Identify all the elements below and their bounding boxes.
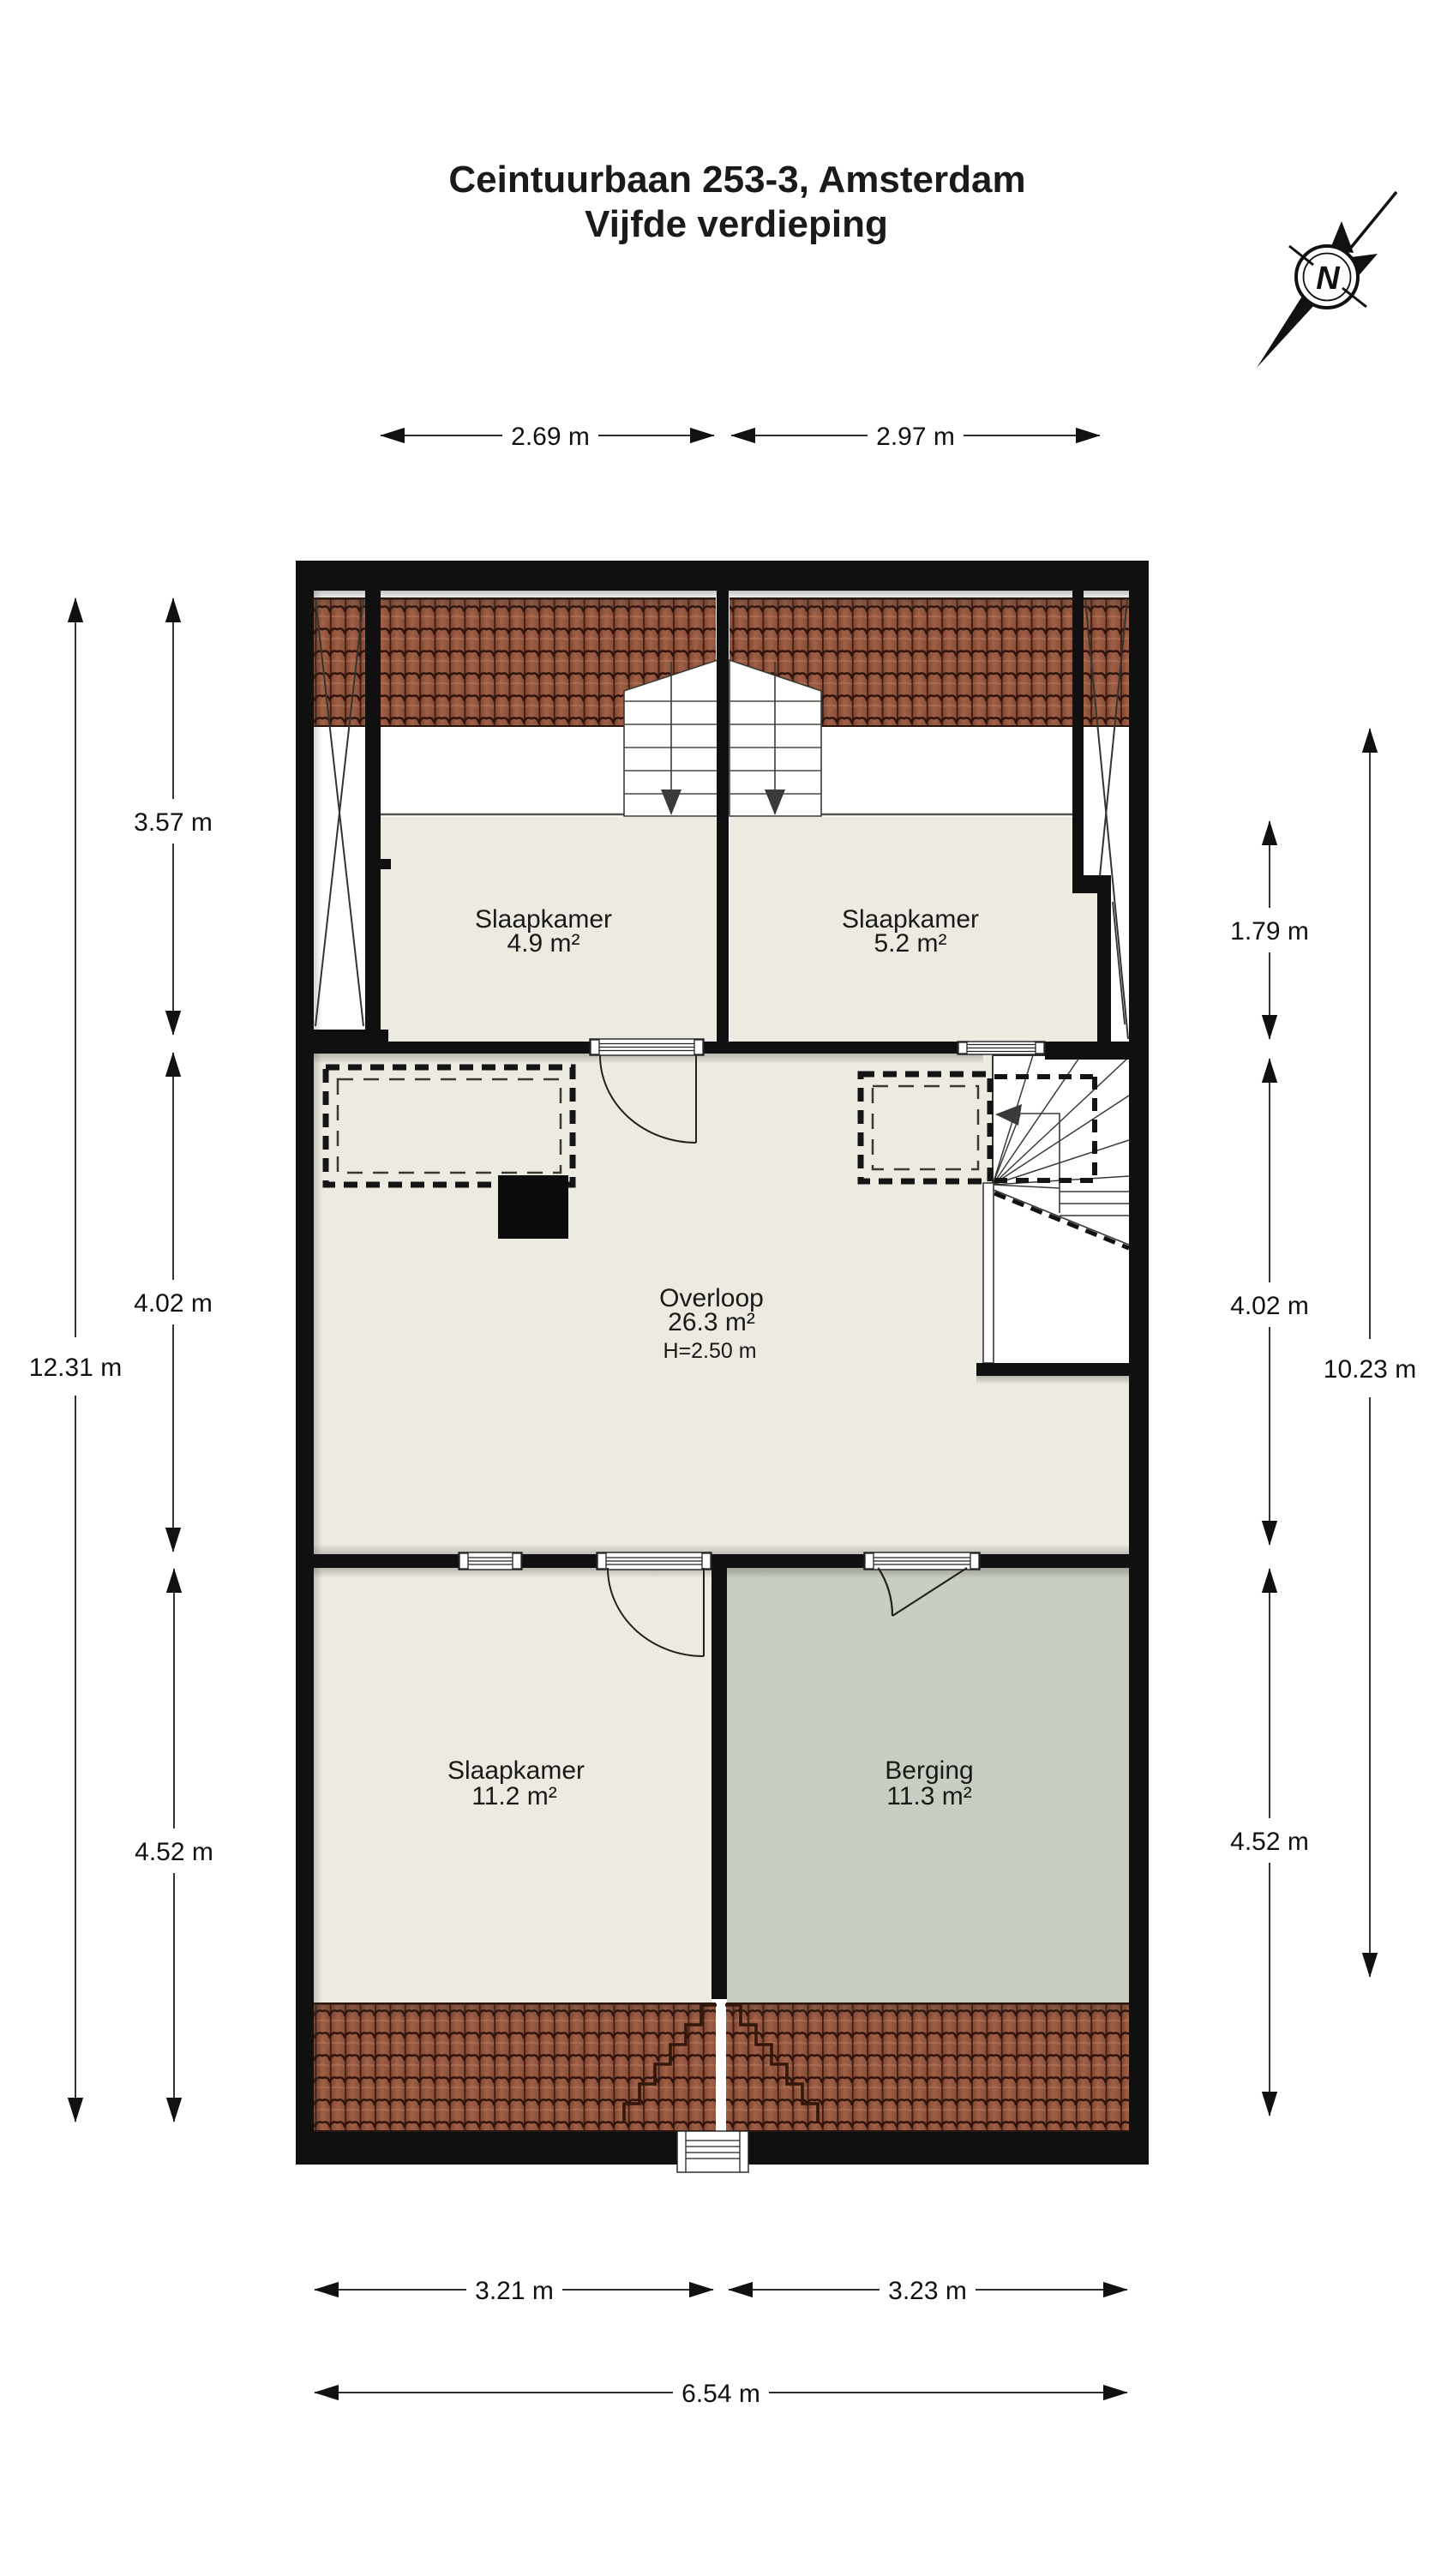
svg-text:N: N [1316, 261, 1341, 297]
svg-text:Vijfde verdieping: Vijfde verdieping [585, 203, 888, 245]
svg-text:Slaapkamer: Slaapkamer [447, 1756, 585, 1785]
svg-text:4.9 m²: 4.9 m² [507, 929, 579, 958]
svg-text:3.23 m: 3.23 m [888, 2277, 967, 2305]
svg-text:12.31 m: 12.31 m [29, 1354, 122, 1382]
svg-text:3.21 m: 3.21 m [475, 2277, 554, 2305]
svg-text:4.02 m: 4.02 m [134, 1289, 213, 1318]
svg-text:10.23 m: 10.23 m [1324, 1355, 1416, 1384]
svg-text:4.02 m: 4.02 m [1230, 1292, 1309, 1320]
svg-text:Berging: Berging [885, 1756, 973, 1785]
svg-text:H=2.50 m: H=2.50 m [663, 1339, 756, 1363]
svg-text:6.54 m: 6.54 m [681, 2380, 760, 2408]
svg-text:Ceintuurbaan 253-3, Amsterdam: Ceintuurbaan 253-3, Amsterdam [448, 159, 1025, 201]
svg-text:5.2 m²: 5.2 m² [874, 929, 946, 958]
svg-text:3.57 m: 3.57 m [134, 808, 213, 837]
svg-text:26.3 m²: 26.3 m² [668, 1308, 755, 1336]
svg-text:2.69 m: 2.69 m [511, 423, 590, 451]
svg-text:11.3 m²: 11.3 m² [886, 1782, 971, 1810]
svg-text:2.97 m: 2.97 m [876, 423, 955, 451]
svg-text:4.52 m: 4.52 m [1230, 1828, 1309, 1856]
svg-text:1.79 m: 1.79 m [1230, 917, 1309, 946]
svg-text:11.2 m²: 11.2 m² [471, 1782, 556, 1810]
svg-text:4.52 m: 4.52 m [135, 1838, 213, 1866]
